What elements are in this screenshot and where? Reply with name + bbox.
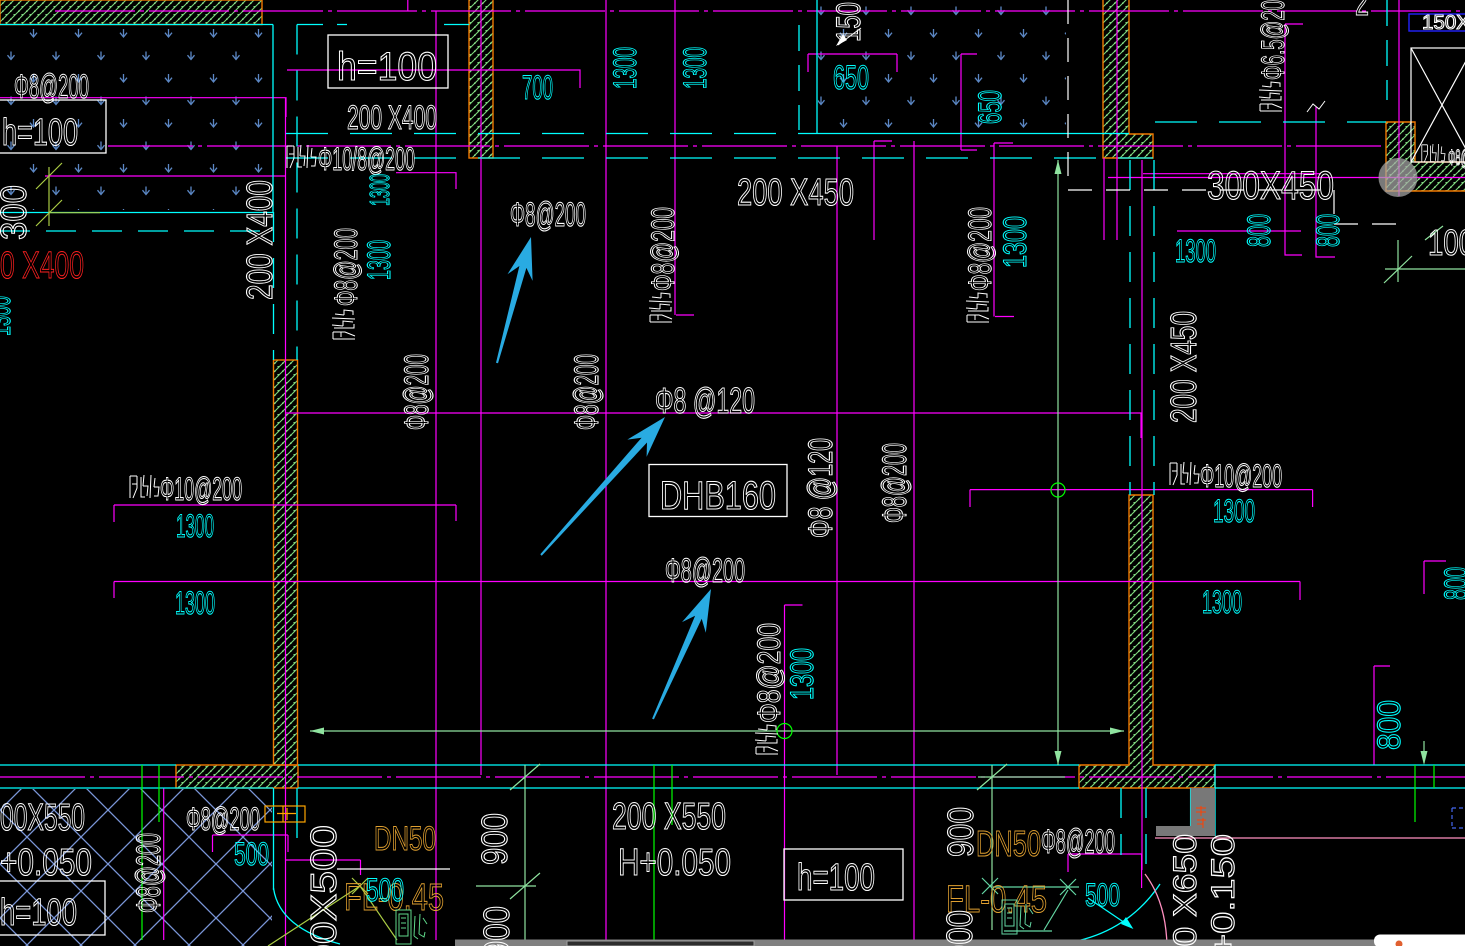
svg-text:900: 900 bbox=[476, 906, 517, 946]
svg-text:800: 800 bbox=[1438, 567, 1465, 600]
svg-text:900: 900 bbox=[474, 813, 515, 865]
svg-text:1300: 1300 bbox=[784, 648, 820, 700]
svg-text:2: 2 bbox=[1355, 0, 1369, 24]
svg-text:200 X400: 200 X400 bbox=[347, 99, 437, 137]
svg-text:h=100: h=100 bbox=[797, 857, 875, 899]
svg-text:500: 500 bbox=[1085, 877, 1120, 913]
svg-text:Φ10@200: Φ10@200 bbox=[160, 471, 242, 507]
svg-text:200 X650: 200 X650 bbox=[1167, 834, 1203, 946]
svg-text:500: 500 bbox=[234, 836, 269, 872]
svg-text:h=100: h=100 bbox=[2, 112, 78, 154]
svg-text:1300: 1300 bbox=[1213, 493, 1255, 529]
svg-text:+0.050: +0.050 bbox=[0, 842, 92, 884]
svg-text:Φ8@200: Φ8@200 bbox=[568, 354, 606, 430]
svg-text:1300: 1300 bbox=[361, 240, 397, 280]
svg-text:800: 800 bbox=[1310, 214, 1346, 247]
svg-text:650: 650 bbox=[833, 59, 869, 97]
svg-text:200 X400: 200 X400 bbox=[239, 180, 280, 300]
svg-text:H+0.050: H+0.050 bbox=[618, 842, 731, 884]
svg-text:200X500: 200X500 bbox=[303, 825, 344, 946]
svg-text:300X450: 300X450 bbox=[1207, 164, 1334, 208]
svg-text:h=100: h=100 bbox=[337, 45, 437, 89]
svg-text:150: 150 bbox=[830, 2, 868, 42]
svg-text:200 X450: 200 X450 bbox=[737, 172, 854, 214]
svg-text:Φ8@200: Φ8@200 bbox=[1041, 823, 1115, 861]
svg-text:900: 900 bbox=[940, 807, 981, 857]
svg-text:Φ6.5@20: Φ6.5@20 bbox=[1255, 0, 1291, 80]
svg-text:Φ8 @120: Φ8 @120 bbox=[655, 380, 755, 421]
svg-text:1300: 1300 bbox=[1202, 584, 1242, 620]
svg-text:1300: 1300 bbox=[1175, 233, 1216, 269]
svg-text:Φ8@200: Φ8@200 bbox=[14, 68, 89, 106]
svg-text:Φ8@: Φ8@ bbox=[1448, 145, 1465, 170]
svg-text:900: 900 bbox=[939, 910, 980, 946]
svg-text:1300: 1300 bbox=[677, 47, 713, 89]
svg-text:Φ8@200: Φ8@200 bbox=[186, 801, 260, 837]
svg-text:Φ8@200: Φ8@200 bbox=[665, 552, 745, 590]
svg-text:100: 100 bbox=[1428, 222, 1465, 263]
svg-text:1300: 1300 bbox=[0, 296, 17, 336]
svg-text:150X: 150X bbox=[1422, 12, 1465, 34]
svg-text:200 X450: 200 X450 bbox=[1163, 311, 1204, 423]
svg-text:Φ8@200: Φ8@200 bbox=[130, 833, 168, 913]
svg-text:Φ8 @120: Φ8 @120 bbox=[802, 438, 840, 538]
svg-text:1300: 1300 bbox=[176, 508, 214, 544]
svg-text:H+0.150: H+0.150 bbox=[1205, 834, 1241, 946]
svg-text:1300: 1300 bbox=[607, 47, 643, 89]
svg-text:800: 800 bbox=[1241, 214, 1277, 247]
svg-text:800: 800 bbox=[1371, 700, 1407, 750]
svg-text:Φ8@200: Φ8@200 bbox=[876, 443, 914, 523]
svg-text:300: 300 bbox=[0, 185, 34, 240]
svg-text:Φ8@200: Φ8@200 bbox=[510, 196, 586, 234]
svg-text:200 X550: 200 X550 bbox=[612, 796, 726, 838]
svg-text:Φ8@200: Φ8@200 bbox=[962, 207, 998, 291]
svg-text:1300: 1300 bbox=[175, 585, 215, 621]
svg-text:00X550: 00X550 bbox=[0, 797, 85, 839]
svg-text:DN50: DN50 bbox=[374, 820, 436, 858]
svg-text:0 X400: 0 X400 bbox=[0, 245, 84, 287]
svg-text:1300: 1300 bbox=[364, 174, 395, 206]
svg-text:DN50: DN50 bbox=[976, 823, 1041, 864]
svg-text:650: 650 bbox=[972, 90, 1008, 124]
svg-text:DHB160: DHB160 bbox=[660, 474, 776, 518]
svg-text:Φ8@200: Φ8@200 bbox=[398, 354, 436, 430]
svg-text:700: 700 bbox=[522, 69, 553, 107]
svg-text:Φ8@200: Φ8@200 bbox=[645, 207, 681, 291]
svg-text:h=100: h=100 bbox=[0, 892, 77, 934]
svg-text:1300: 1300 bbox=[997, 216, 1033, 268]
svg-text:Φ10@200: Φ10@200 bbox=[1200, 458, 1282, 494]
svg-text:Φ8@200: Φ8@200 bbox=[328, 228, 364, 306]
svg-text:Φ8@200: Φ8@200 bbox=[751, 623, 787, 723]
svg-text:Φ10/8@200: Φ10/8@200 bbox=[318, 141, 415, 177]
svg-text:500: 500 bbox=[366, 872, 404, 908]
